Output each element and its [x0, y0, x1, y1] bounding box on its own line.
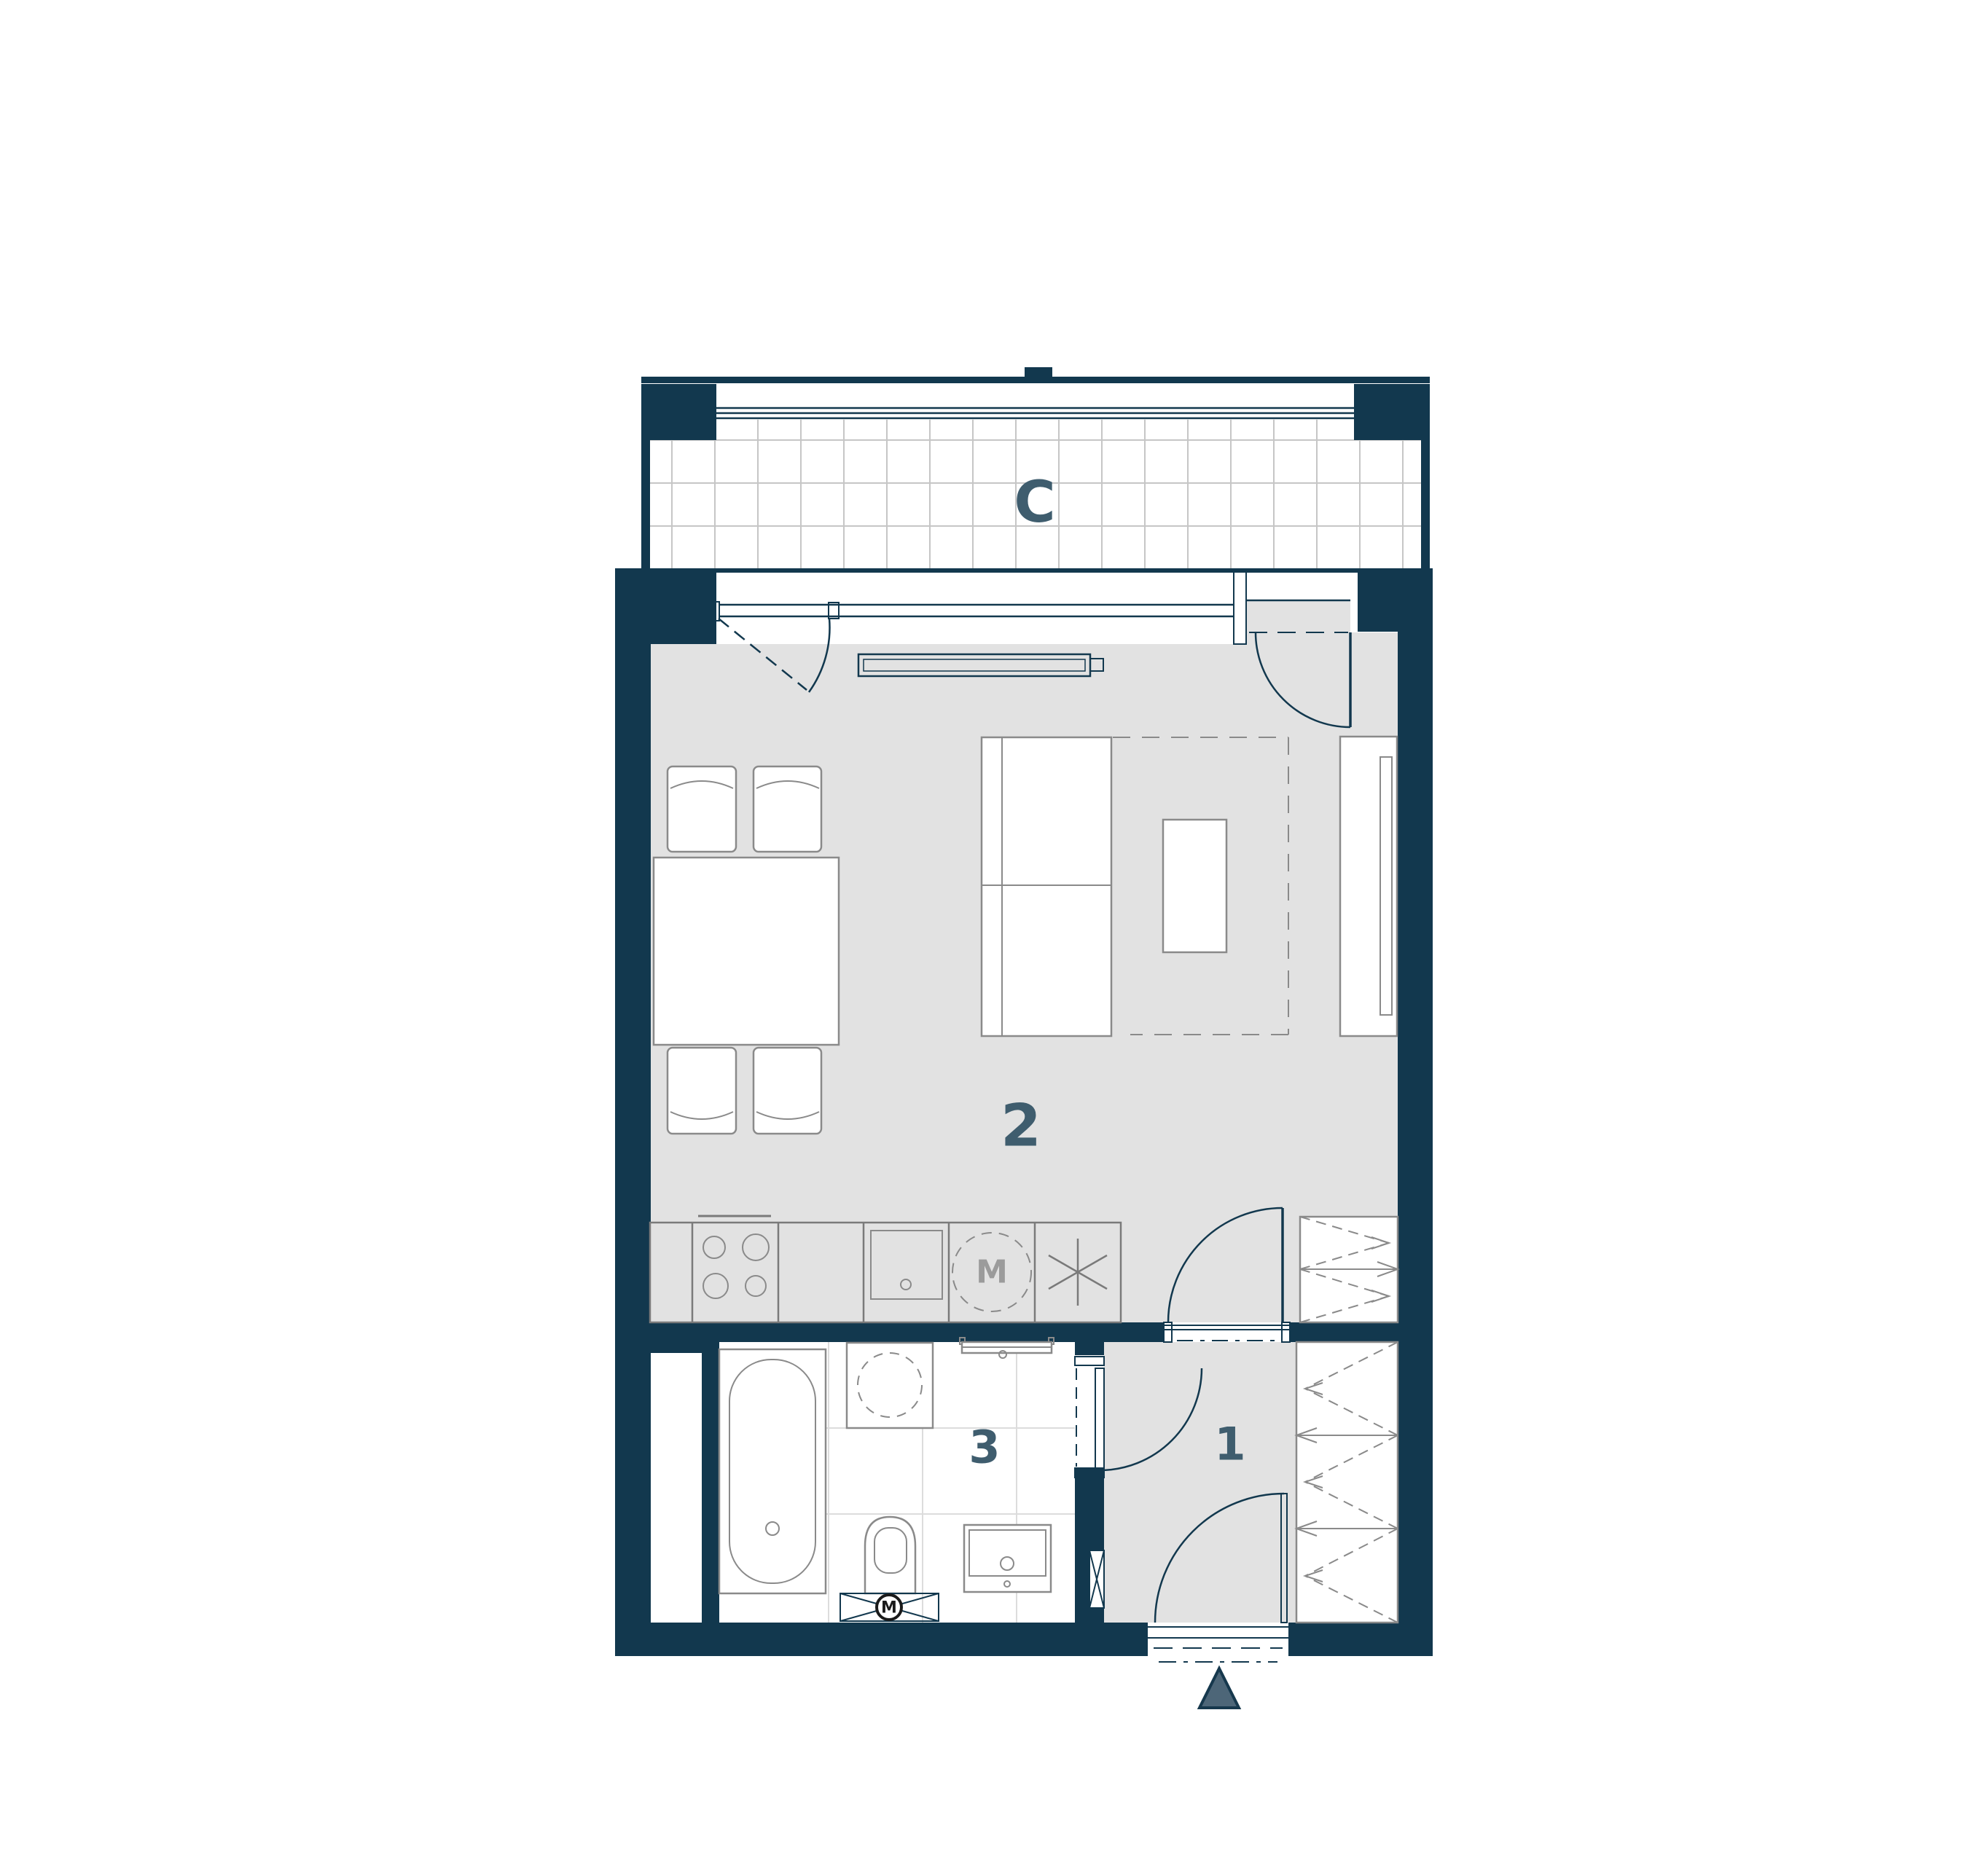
chair-icon [754, 766, 821, 852]
coffee-table-icon [1163, 820, 1226, 952]
floor-plan-svg: C [0, 0, 1988, 1871]
wall-bath-hall-mid [1075, 1467, 1104, 1550]
vanity-sink-icon [964, 1525, 1051, 1592]
balcony-outer-edge [641, 377, 1430, 383]
room-label-living: 2 [1001, 1092, 1041, 1160]
fan-label: M [881, 1599, 897, 1617]
chair-icon [668, 1048, 736, 1134]
balcony-door-recess-floor [1246, 600, 1350, 644]
balcony-pillar-right [1354, 384, 1430, 440]
top-tick-mark [1025, 367, 1052, 377]
room-label-hall: 1 [1214, 1418, 1245, 1471]
tall-cabinet-icon [1340, 737, 1397, 1036]
room-label-bathroom: 3 [968, 1421, 1000, 1474]
bed-icon [982, 737, 1111, 1036]
wall-interior-horizontal-right [1290, 1322, 1398, 1342]
balcony: C [641, 367, 1430, 568]
wall-bottom-right [1288, 1623, 1433, 1656]
wardrobe-icon [1300, 1217, 1398, 1322]
floor-sliver [1350, 632, 1398, 644]
entrance-arrow-icon [1200, 1668, 1239, 1708]
chair-icon [754, 1048, 821, 1134]
wall-top-right-block [1358, 568, 1433, 632]
wall-top-outer-line [716, 568, 1358, 573]
floor-plan-page: C [0, 0, 1988, 1871]
wall-interior-horizontal-left [651, 1322, 1164, 1342]
washing-machine-position [847, 1343, 933, 1428]
wall-bottom-left [615, 1623, 1148, 1656]
wall-bath-hall-bottom [1075, 1608, 1104, 1623]
wall-shaft-top [651, 1342, 719, 1353]
wall-right [1398, 632, 1433, 1656]
room-label-balcony: C [1014, 470, 1055, 536]
balcony-glazing [716, 408, 1354, 418]
wall-bath-hall-shaftside [1075, 1550, 1089, 1608]
balcony-left-wall [641, 440, 650, 568]
bathtub-icon [719, 1349, 826, 1593]
washing-machine-label: M [976, 1254, 1008, 1291]
toilet-icon [865, 1517, 915, 1593]
doorway-threshold [1164, 1322, 1290, 1342]
balcony-right-wall [1421, 440, 1430, 568]
chair-icon [668, 766, 736, 852]
wall-left [615, 568, 651, 1656]
wall-shaft-right [702, 1353, 719, 1623]
duct-shaft-icon [1089, 1550, 1104, 1608]
wardrobe-icon [1296, 1342, 1398, 1623]
balcony-pillar-left [641, 384, 716, 440]
window-divider-tall [1234, 570, 1246, 644]
